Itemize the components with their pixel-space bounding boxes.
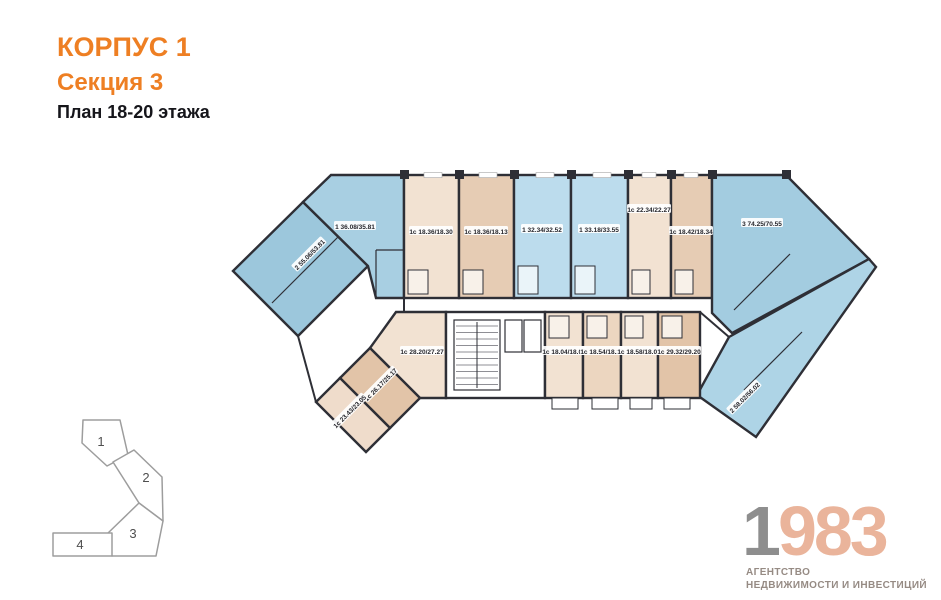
agency-logo: 1983 АГЕНТСТВО НЕДВИЖИМОСТИ И ИНВЕСТИЦИЙ — [742, 496, 938, 592]
minimap-section-2-number: 2 — [142, 470, 149, 485]
svg-text:1 36.08/35.81: 1 36.08/35.81 — [335, 224, 375, 231]
elevator-shaft — [505, 320, 522, 352]
stair-core — [446, 312, 545, 398]
logo-tagline-2: НЕДВИЖИМОСТИ И ИНВЕСТИЦИЙ — [746, 579, 938, 592]
balconies — [552, 398, 690, 409]
apartment-label: 1 32.34/32.52 — [521, 224, 563, 234]
svg-text:1с 18.58/18.07: 1с 18.58/18.07 — [617, 349, 661, 356]
floor-plan: 2 55.06/53.81 1 36.08/35.81 1с 18.36/18.… — [233, 170, 876, 452]
svg-text:1с 18.42/18.34: 1с 18.42/18.34 — [669, 229, 713, 236]
svg-text:1с 29.32/29.20: 1с 29.32/29.20 — [657, 349, 701, 356]
svg-text:1с 18.36/18.30: 1с 18.36/18.30 — [409, 229, 453, 236]
minimap-section-3-number: 3 — [129, 526, 136, 541]
minimap-section-4-number: 4 — [76, 537, 83, 552]
apartment-label: 1 36.08/35.81 — [334, 221, 376, 231]
apartment-label: 1с 18.58/18.07 — [617, 346, 661, 356]
apartment-label: 1с 18.36/18.30 — [409, 226, 453, 236]
minimap-section-1-number: 1 — [97, 434, 104, 449]
apartment-label: 1с 28.20/27.27 — [400, 346, 444, 356]
apartment-label: 3 74.25/70.55 — [741, 218, 783, 228]
building-minimap: 1 2 3 4 — [53, 420, 163, 556]
apartment-label: 1с 29.32/29.20 — [657, 346, 701, 356]
svg-text:1с 18.36/18.13: 1с 18.36/18.13 — [464, 229, 508, 236]
logo-digit-1: 1 — [742, 492, 778, 570]
svg-text:3 74.25/70.55: 3 74.25/70.55 — [742, 221, 782, 228]
apartment-label: 1с 22.34/22.27 — [627, 204, 671, 214]
apartment-label: 1 33.18/33.55 — [578, 224, 620, 234]
logo-year: 1983 — [742, 496, 938, 566]
svg-text:1с 22.34/22.27: 1с 22.34/22.27 — [627, 207, 671, 214]
svg-text:1 32.34/32.52: 1 32.34/32.52 — [522, 227, 562, 234]
svg-text:1 33.18/33.55: 1 33.18/33.55 — [579, 227, 619, 234]
svg-text:1с 28.20/27.27: 1с 28.20/27.27 — [400, 349, 444, 356]
logo-digits-983: 983 — [778, 492, 886, 570]
elevator-shaft — [524, 320, 541, 352]
corridor-wall — [298, 336, 316, 402]
apartment-label: 1с 18.42/18.34 — [669, 226, 713, 236]
apartment-label: 1с 18.36/18.13 — [464, 226, 508, 236]
